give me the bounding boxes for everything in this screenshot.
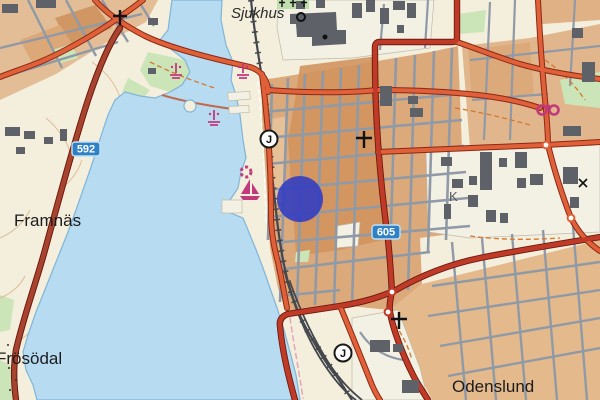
badge-number: 605 bbox=[377, 227, 395, 239]
badge-number: 592 bbox=[77, 144, 95, 156]
label-frosodal: Frösödal bbox=[0, 349, 62, 368]
station-letter: J bbox=[266, 134, 272, 146]
map-canvas[interactable]: J J 592 605 Sjukhus Framnäs Frösödal Ode… bbox=[0, 0, 600, 400]
railway-station-icon: J bbox=[335, 345, 352, 362]
label-block-k: K bbox=[449, 189, 458, 204]
label-framnas: Framnäs bbox=[14, 211, 81, 230]
label-sjukhus: Sjukhus bbox=[231, 5, 285, 22]
label-odenslund: Odenslund bbox=[452, 377, 534, 396]
incident-marker[interactable] bbox=[277, 176, 323, 222]
islet bbox=[184, 100, 196, 112]
dot-symbol bbox=[323, 35, 328, 40]
station-letter: J bbox=[340, 348, 346, 360]
railway-station-icon: J bbox=[261, 131, 278, 148]
road-badge-605: 605 bbox=[372, 225, 400, 239]
road-badge-592: 592 bbox=[72, 142, 100, 156]
